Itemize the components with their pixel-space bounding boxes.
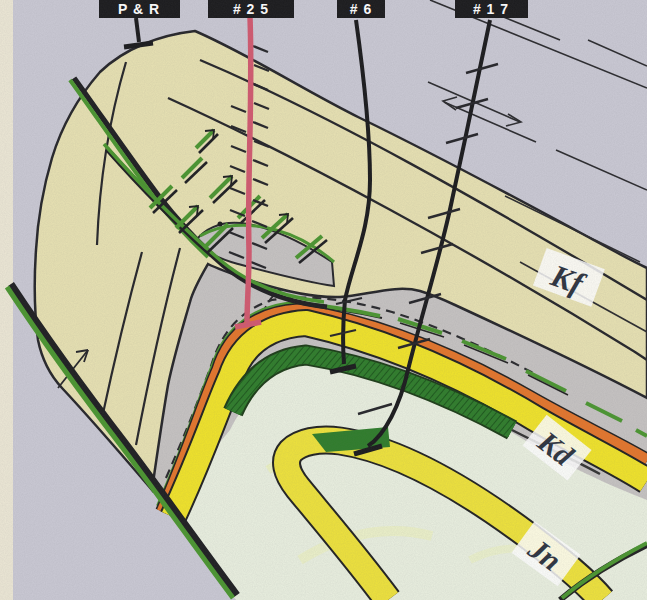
geologic-structure-map: Kf Kd Jn P & R # 2 5 # 6 # 1 7 xyxy=(0,0,647,600)
map-canvas: Kf Kd Jn P & R # 2 5 # 6 # 1 7 xyxy=(0,0,647,600)
paper-grain-overlay xyxy=(0,0,647,600)
